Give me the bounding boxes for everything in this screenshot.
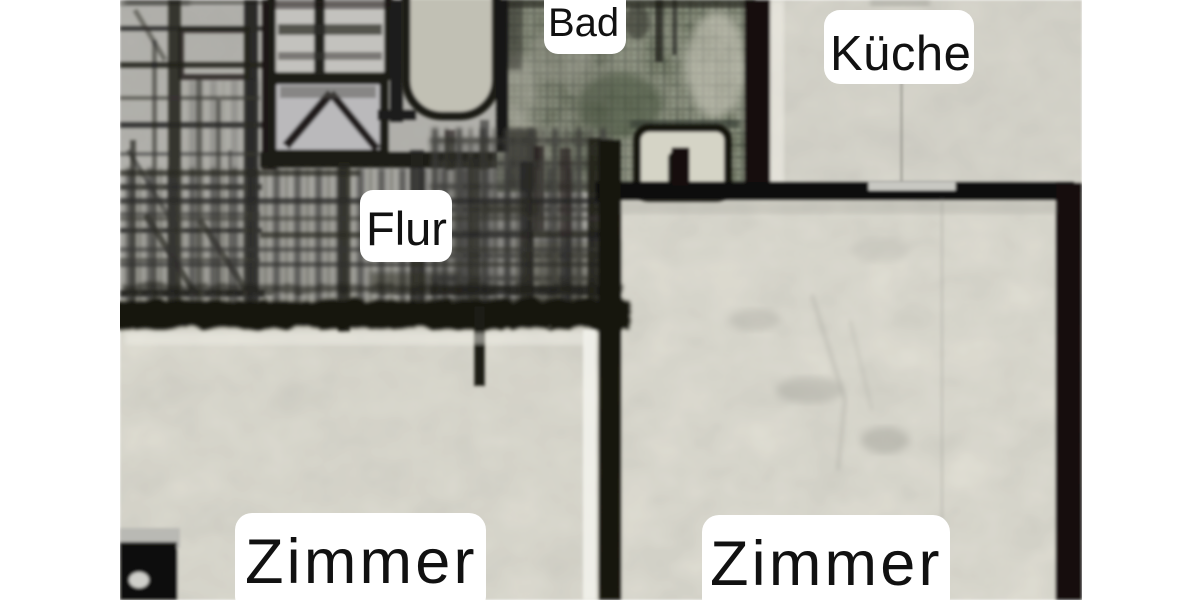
- svg-text:Bad: Bad: [548, 1, 619, 45]
- svg-text:Zimmer: Zimmer: [710, 529, 943, 599]
- svg-text:Küche: Küche: [830, 27, 971, 81]
- svg-text:Flur: Flur: [366, 202, 447, 255]
- svg-text:Zimmer: Zimmer: [245, 527, 478, 597]
